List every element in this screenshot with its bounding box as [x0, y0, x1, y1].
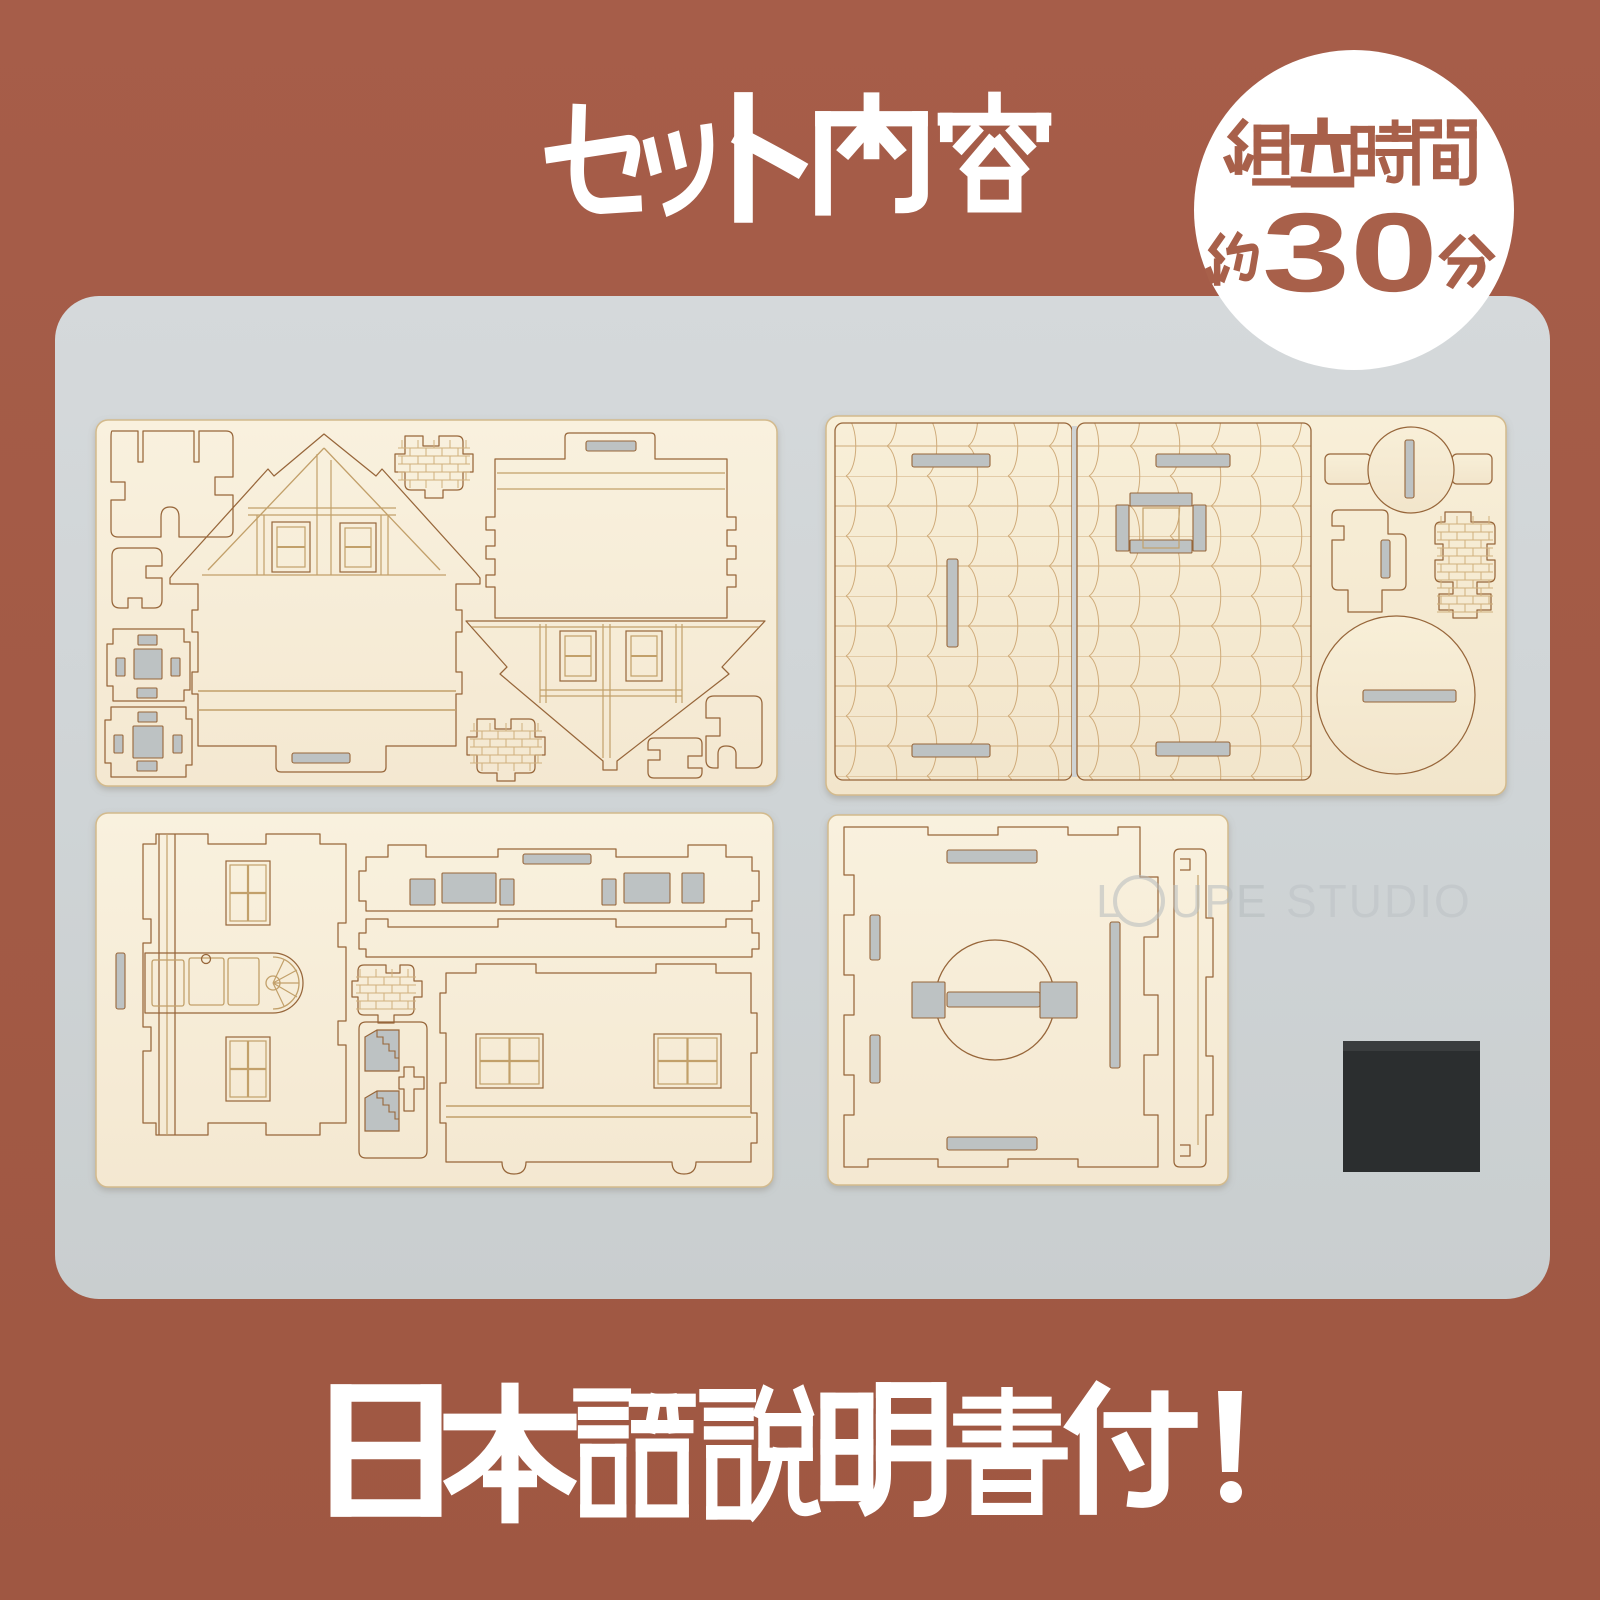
- svg-text:30: 30: [1262, 190, 1438, 315]
- svg-text:UPE: UPE: [1170, 875, 1268, 927]
- svg-text:L: L: [1096, 875, 1122, 927]
- svg-text:STUDIO: STUDIO: [1286, 875, 1472, 927]
